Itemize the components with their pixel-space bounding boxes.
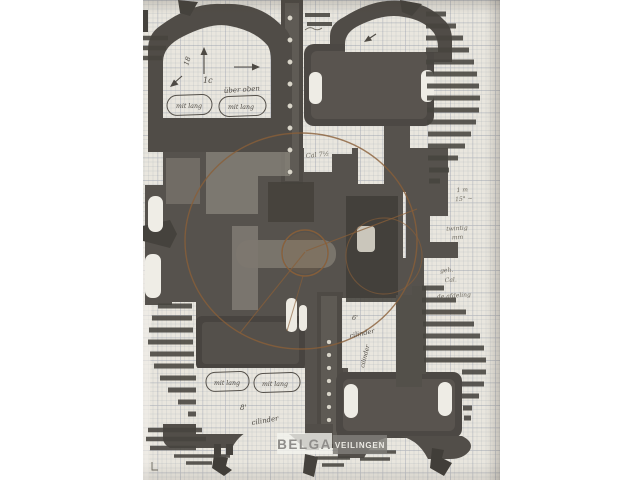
margin-note: 1 m — [456, 186, 468, 194]
margin-note: Cal. — [445, 276, 458, 284]
margin-note: 15° ~ — [455, 195, 473, 203]
margin-note: geh. — [440, 267, 454, 275]
size-note: 8' — [240, 404, 246, 412]
auction-photo-screenshot: 18 1c über oben mit lang mit lang mit la… — [0, 0, 640, 480]
panel-bottom-left — [196, 368, 305, 434]
scale-annotation: 1c — [203, 76, 213, 85]
margin-note: mm — [452, 234, 464, 242]
stamp-text: mit lang — [262, 381, 288, 388]
technical-drawing-photo: 18 1c über oben mit lang mit lang mit la… — [0, 0, 640, 480]
watermark: BELGA VEILINGEN — [277, 433, 387, 454]
stamp-text: mit lang — [214, 380, 240, 387]
watermark-primary-text: BELGA — [277, 437, 332, 452]
watermark-secondary-text: VEILINGEN — [335, 441, 385, 450]
stamp-text: mit lang — [228, 104, 254, 111]
size-note: 6' — [352, 314, 358, 322]
stamp-text: mit lang — [176, 103, 202, 110]
